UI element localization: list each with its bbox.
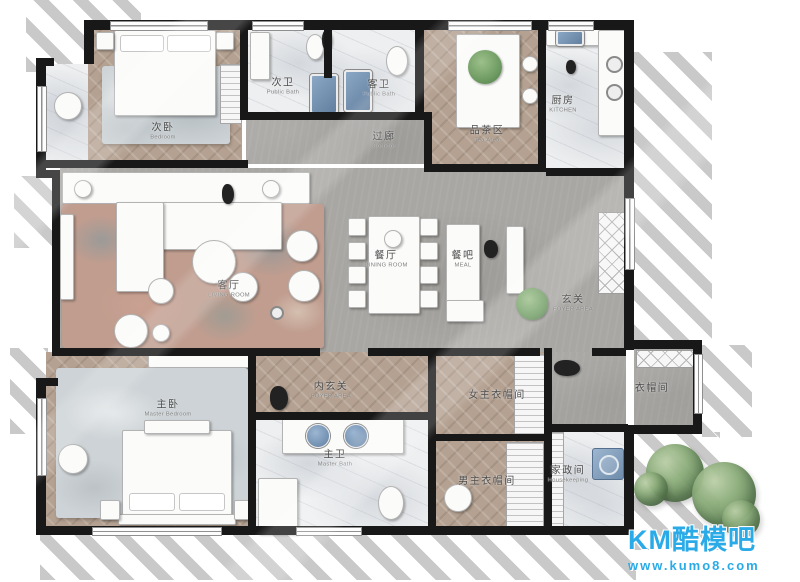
wall-segment <box>538 20 546 172</box>
washer-drum <box>599 455 619 475</box>
speaker <box>262 180 280 198</box>
dining-chair <box>348 290 366 308</box>
double-bed <box>122 430 232 518</box>
window <box>694 354 703 414</box>
speaker <box>74 180 92 198</box>
window <box>448 21 532 31</box>
floor-plan-canvas: 次卧Bedroom 次卫Public Bath 客卫Public Bath 过廊… <box>0 0 800 582</box>
wall-segment <box>52 348 252 356</box>
window <box>625 198 635 270</box>
pillow <box>120 35 164 52</box>
headboard <box>118 514 236 525</box>
dining-chair <box>348 218 366 236</box>
wall-segment <box>434 434 546 441</box>
stool <box>522 56 538 72</box>
dining-chair <box>420 290 438 308</box>
pillow <box>129 493 175 511</box>
dining-chair <box>420 242 438 260</box>
wall-segment <box>36 160 248 168</box>
plant-decor <box>566 60 576 74</box>
wall-segment <box>624 425 702 434</box>
wardrobe <box>514 354 546 438</box>
wall-segment <box>240 20 248 120</box>
wall-segment <box>368 348 430 356</box>
tree <box>634 472 668 506</box>
floor-lamp <box>270 306 284 320</box>
wall-segment <box>254 412 432 420</box>
shoe-cabinet <box>598 212 626 294</box>
pillow <box>179 493 225 511</box>
wall-shadow <box>702 345 752 437</box>
wall-segment <box>248 348 256 535</box>
window <box>92 527 222 536</box>
watermark-url: www.kumo8.com <box>628 558 760 573</box>
tv-bench <box>148 354 250 368</box>
watermark-brand: KM酷模吧 <box>628 518 760 557</box>
wall-segment <box>436 348 540 356</box>
wall-segment <box>36 170 60 178</box>
armchair <box>288 270 320 302</box>
floor-corridor <box>246 118 426 164</box>
bath-vanity <box>250 32 270 80</box>
dining-chair <box>348 266 366 284</box>
coat-stand <box>270 386 288 410</box>
window <box>252 21 304 31</box>
cooktop-burner <box>606 84 623 101</box>
wall-segment <box>256 348 320 356</box>
wall-segment <box>548 424 628 432</box>
nightstand <box>100 500 120 520</box>
bar-counter <box>446 224 480 310</box>
bar-cabinet <box>446 300 484 322</box>
cooktop-burner <box>606 56 623 73</box>
foyer-cabinet <box>506 226 524 294</box>
armchair <box>54 92 82 120</box>
window <box>296 527 362 536</box>
sculpture <box>222 184 234 204</box>
wash-basin <box>306 424 330 448</box>
window <box>37 86 47 152</box>
armchair <box>286 230 318 262</box>
kitchen-sink <box>556 30 584 46</box>
washing-machine <box>592 448 624 480</box>
window <box>548 21 594 31</box>
wall-segment <box>424 164 542 172</box>
window <box>110 21 208 31</box>
coffee-table <box>192 240 236 284</box>
wall-segment <box>546 168 634 176</box>
centerpiece <box>384 230 402 248</box>
bathtub <box>344 70 372 112</box>
wall-segment <box>84 20 94 64</box>
wall-segment <box>36 58 54 66</box>
wash-basin <box>344 424 368 448</box>
watermark: KM酷模吧 www.kumo8.com <box>628 518 760 573</box>
ottoman <box>152 324 170 342</box>
tv-bench <box>60 214 74 300</box>
armchair <box>444 484 472 512</box>
wall-segment <box>324 20 332 78</box>
wall-segment <box>428 348 436 535</box>
bed-bench <box>144 420 210 434</box>
nightstand <box>216 32 234 50</box>
dining-chair <box>420 266 438 284</box>
plant <box>468 50 502 84</box>
wall-shadow <box>14 176 54 248</box>
entry-door <box>554 360 580 376</box>
bathtub <box>310 74 338 114</box>
cloakroom-cabinet <box>636 350 694 368</box>
wall-segment <box>592 348 626 356</box>
wall-segment <box>544 348 552 535</box>
wall-shadow <box>40 534 636 580</box>
pillow <box>167 35 211 52</box>
wall-segment <box>36 378 58 386</box>
double-bed <box>114 30 216 116</box>
wall-segment <box>424 112 432 172</box>
armchair <box>58 444 88 474</box>
dining-chair <box>420 218 438 236</box>
wall-segment <box>52 170 60 356</box>
bar-stool <box>484 240 498 258</box>
side-table <box>228 272 258 302</box>
toilet <box>386 46 408 76</box>
plant <box>516 288 548 320</box>
bath-vanity <box>282 418 404 454</box>
wall-segment <box>246 112 426 120</box>
wall-segment <box>624 340 702 349</box>
nightstand <box>96 32 114 50</box>
toilet <box>378 486 404 520</box>
stool <box>522 88 538 104</box>
wall-segment <box>624 20 634 350</box>
pouf <box>148 278 174 304</box>
storage-shelf <box>550 432 564 534</box>
window <box>37 398 47 476</box>
wall-shadow <box>634 52 712 340</box>
wardrobe <box>506 442 544 532</box>
dining-chair <box>348 242 366 260</box>
wall-segment <box>415 20 424 120</box>
wardrobe <box>220 64 242 124</box>
lounge-chair <box>114 314 148 348</box>
